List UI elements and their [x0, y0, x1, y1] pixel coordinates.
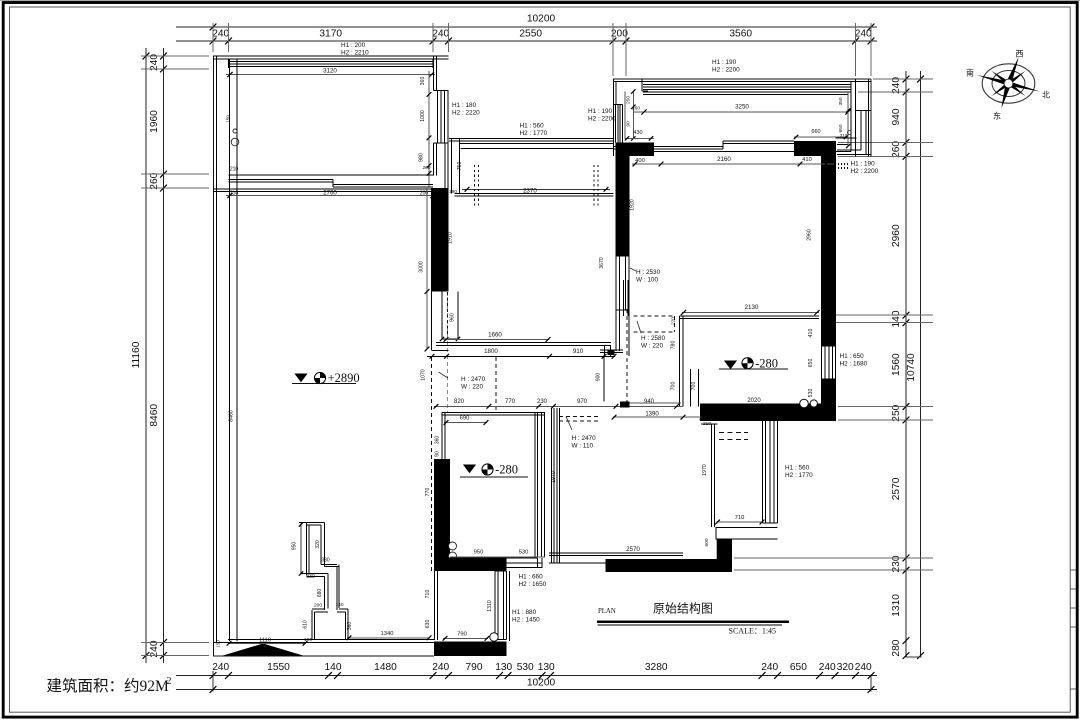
- svg-text:H1 : 560: H1 : 560: [785, 465, 810, 472]
- svg-text:630: 630: [425, 620, 431, 629]
- svg-text:北: 北: [1042, 91, 1050, 100]
- svg-text:1970: 1970: [551, 471, 557, 483]
- svg-text:430: 430: [633, 130, 642, 136]
- svg-text:770: 770: [505, 399, 516, 405]
- svg-text:2020: 2020: [747, 398, 761, 404]
- svg-text:W : 100: W : 100: [636, 277, 658, 284]
- svg-text:410: 410: [802, 157, 812, 163]
- svg-text:700: 700: [691, 382, 697, 391]
- svg-text:1550: 1550: [267, 662, 290, 673]
- svg-text:530: 530: [808, 389, 814, 398]
- svg-text:1310: 1310: [487, 600, 493, 612]
- svg-text:H1 : 190: H1 : 190: [588, 108, 613, 115]
- svg-text:H2 : 2200: H2 : 2200: [588, 116, 616, 123]
- svg-text:10200: 10200: [527, 678, 556, 689]
- svg-text:8460: 8460: [149, 404, 160, 427]
- svg-text:2760: 2760: [323, 189, 337, 196]
- svg-text:820: 820: [454, 399, 465, 405]
- svg-text:780: 780: [671, 341, 677, 350]
- svg-text:360: 360: [435, 436, 441, 445]
- svg-text:3280: 3280: [645, 662, 668, 673]
- svg-text:600: 600: [704, 538, 710, 546]
- svg-text:H2 : 1650: H2 : 1650: [519, 581, 547, 588]
- svg-text:240: 240: [432, 29, 449, 40]
- svg-text:H2 : 1450: H2 : 1450: [512, 617, 540, 624]
- svg-text:1480: 1480: [374, 662, 397, 673]
- svg-text:350: 350: [838, 97, 844, 105]
- svg-text:680: 680: [317, 589, 323, 598]
- svg-text:220: 220: [671, 317, 677, 325]
- svg-text:1910: 1910: [448, 232, 454, 244]
- svg-text:1920: 1920: [630, 199, 636, 211]
- svg-text:710: 710: [735, 515, 745, 521]
- svg-text:西: 西: [1016, 50, 1024, 59]
- svg-text:790: 790: [457, 632, 467, 638]
- svg-text:90: 90: [435, 451, 441, 457]
- svg-text:3170: 3170: [319, 29, 342, 40]
- svg-text:280: 280: [891, 639, 902, 656]
- svg-text:原始结构图: 原始结构图: [653, 602, 713, 616]
- svg-text:260: 260: [891, 141, 902, 158]
- svg-text:2130: 2130: [745, 304, 759, 311]
- svg-text:360: 360: [347, 622, 353, 631]
- svg-text:1310: 1310: [891, 594, 902, 617]
- svg-text:790: 790: [466, 662, 483, 673]
- svg-text:H1 : 660: H1 : 660: [519, 574, 544, 581]
- svg-text:260: 260: [149, 172, 160, 189]
- svg-text:90: 90: [626, 121, 632, 127]
- svg-text:240: 240: [855, 662, 872, 673]
- svg-text:190: 190: [449, 189, 457, 195]
- svg-text:660: 660: [811, 129, 820, 135]
- svg-text:210: 210: [230, 191, 239, 197]
- svg-text:东: 东: [993, 111, 1001, 121]
- svg-text:1390: 1390: [645, 412, 659, 418]
- svg-text:320: 320: [315, 540, 321, 549]
- svg-text:140: 140: [891, 310, 902, 327]
- svg-text:2160: 2160: [717, 156, 731, 163]
- svg-text:11160: 11160: [131, 341, 142, 368]
- svg-text:8460: 8460: [229, 410, 235, 422]
- svg-text:910: 910: [573, 348, 584, 355]
- svg-text:940: 940: [644, 399, 655, 405]
- svg-text:3670: 3670: [599, 257, 605, 269]
- svg-text:970: 970: [577, 399, 588, 405]
- svg-text:H1 : 200: H1 : 200: [341, 42, 366, 49]
- svg-text:H : 2470: H : 2470: [461, 376, 486, 383]
- svg-text:1110: 1110: [259, 638, 271, 644]
- svg-text:H2 : 1680: H2 : 1680: [840, 361, 868, 368]
- svg-text:750: 750: [457, 162, 463, 171]
- svg-text:240: 240: [855, 29, 872, 40]
- svg-text:H2 : 2220: H2 : 2220: [452, 110, 480, 117]
- svg-text:650: 650: [808, 359, 814, 368]
- svg-text:230: 230: [537, 399, 548, 405]
- svg-text:140: 140: [325, 662, 342, 673]
- svg-text:H1 : 190: H1 : 190: [851, 161, 876, 168]
- svg-text:H1 : 190: H1 : 190: [712, 59, 737, 66]
- svg-text:240: 240: [819, 662, 836, 673]
- svg-text:960: 960: [450, 313, 456, 322]
- svg-text:200: 200: [314, 603, 322, 609]
- svg-text:710: 710: [425, 590, 431, 599]
- svg-text:10200: 10200: [527, 14, 556, 25]
- svg-text:H2 : 1770: H2 : 1770: [520, 130, 548, 137]
- svg-text:W : 110: W : 110: [572, 443, 594, 450]
- svg-text:770: 770: [425, 488, 431, 497]
- svg-text:240: 240: [212, 662, 229, 673]
- svg-text:900: 900: [596, 373, 602, 382]
- svg-text:H1 : 880: H1 : 880: [512, 609, 537, 616]
- svg-text:690: 690: [460, 416, 470, 422]
- svg-text:H1 : 180: H1 : 180: [452, 102, 477, 109]
- svg-text:650: 650: [838, 124, 844, 132]
- svg-text:2550: 2550: [519, 29, 542, 40]
- svg-text:140: 140: [335, 602, 343, 608]
- svg-text:410: 410: [808, 329, 814, 338]
- svg-text:130: 130: [538, 662, 555, 673]
- svg-text:W : 220: W : 220: [461, 384, 483, 391]
- svg-text:130: 130: [495, 662, 512, 673]
- svg-text:1560: 1560: [891, 353, 902, 376]
- svg-text:650: 650: [790, 662, 807, 673]
- svg-text:H2 : 2200: H2 : 2200: [712, 67, 740, 74]
- svg-text:南: 南: [966, 68, 974, 78]
- svg-text:250: 250: [626, 96, 632, 104]
- svg-text:2570: 2570: [891, 477, 902, 500]
- svg-text:1970: 1970: [702, 464, 708, 476]
- svg-text:950: 950: [474, 550, 484, 556]
- svg-text:1070: 1070: [421, 369, 427, 381]
- svg-text:330: 330: [306, 574, 315, 580]
- svg-text:-280: -280: [755, 356, 778, 370]
- svg-text:530: 530: [519, 550, 529, 556]
- svg-text:400: 400: [635, 158, 645, 164]
- svg-text:330: 330: [321, 558, 330, 564]
- svg-text:H : 2530: H : 2530: [636, 269, 661, 276]
- svg-text:240: 240: [212, 29, 229, 40]
- svg-text:3560: 3560: [729, 29, 752, 40]
- svg-text:240: 240: [761, 662, 778, 673]
- svg-text:1960: 1960: [149, 110, 160, 133]
- svg-text:940: 940: [891, 108, 902, 125]
- svg-text:10740: 10740: [906, 353, 917, 382]
- svg-text:260: 260: [632, 106, 640, 112]
- svg-text:3250: 3250: [735, 104, 749, 111]
- svg-text:H : 2470: H : 2470: [572, 435, 597, 442]
- svg-text:PLAN: PLAN: [598, 608, 616, 615]
- svg-text:H2 : 1770: H2 : 1770: [785, 472, 813, 479]
- svg-text:2570: 2570: [626, 546, 640, 553]
- svg-text:1660: 1660: [488, 332, 502, 339]
- svg-text:980: 980: [419, 153, 425, 162]
- svg-text:建筑面积：约92M: 建筑面积：约92M: [47, 677, 170, 695]
- svg-text:H1 : 650: H1 : 650: [840, 353, 865, 360]
- svg-text:2: 2: [167, 676, 172, 687]
- svg-text:1800: 1800: [484, 348, 498, 355]
- svg-text:150: 150: [216, 640, 221, 648]
- svg-text:200: 200: [422, 165, 430, 171]
- svg-text:360: 360: [420, 77, 426, 86]
- svg-text:W : 220: W : 220: [641, 343, 663, 350]
- svg-text:2960: 2960: [891, 224, 902, 247]
- svg-text:700: 700: [671, 382, 677, 391]
- svg-text:210: 210: [230, 167, 239, 173]
- svg-text:150: 150: [226, 115, 231, 123]
- svg-text:950: 950: [292, 542, 298, 551]
- svg-text:1000: 1000: [420, 110, 426, 122]
- svg-text:2960: 2960: [807, 229, 813, 241]
- svg-text:2370: 2370: [523, 187, 537, 194]
- svg-text:H1 : 560: H1 : 560: [520, 123, 545, 130]
- svg-text:-280: -280: [495, 463, 518, 477]
- svg-text:320: 320: [837, 662, 854, 673]
- svg-text:3120: 3120: [323, 68, 337, 75]
- svg-text:3000: 3000: [419, 261, 425, 273]
- svg-text:1340: 1340: [381, 631, 394, 637]
- svg-text:610: 610: [303, 620, 309, 629]
- svg-text:530: 530: [517, 662, 534, 673]
- svg-text:190: 190: [304, 637, 312, 643]
- svg-text:H2 : 2200: H2 : 2200: [851, 168, 879, 175]
- svg-text:240: 240: [432, 662, 449, 673]
- svg-text:SCALE：1:45: SCALE：1:45: [729, 627, 777, 636]
- svg-text:H : 2580: H : 2580: [641, 335, 666, 342]
